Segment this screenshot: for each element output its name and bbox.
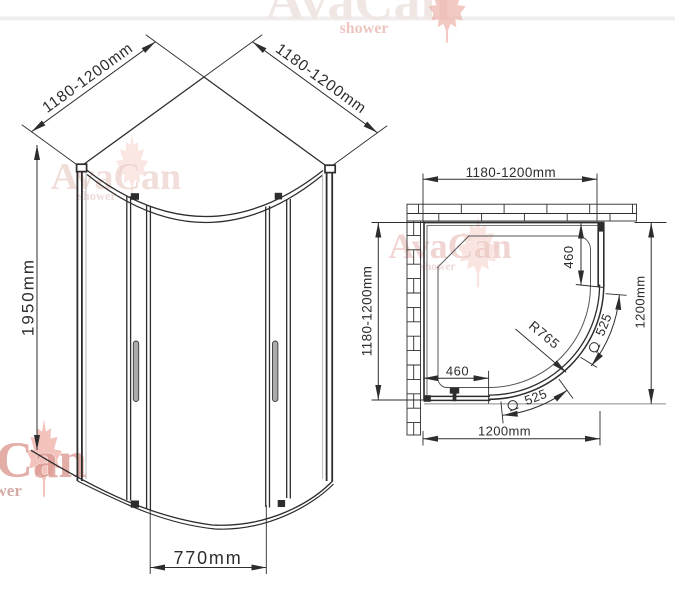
svg-text:1180-1200mm: 1180-1200mm <box>39 40 136 117</box>
svg-text:1200mm: 1200mm <box>633 276 648 329</box>
svg-text:1180-1200mm: 1180-1200mm <box>272 40 369 117</box>
svg-text:shower: shower <box>340 20 389 37</box>
svg-text:1180-1200mm: 1180-1200mm <box>466 165 556 180</box>
svg-text:1200mm: 1200mm <box>478 424 531 439</box>
svg-text:460: 460 <box>561 245 576 268</box>
svg-text:ower: ower <box>0 481 22 500</box>
svg-text:770mm: 770mm <box>173 548 242 568</box>
svg-text:R765: R765 <box>526 318 563 352</box>
svg-text:1950mm: 1950mm <box>19 258 38 336</box>
svg-text:1180-1200mm: 1180-1200mm <box>360 266 375 356</box>
svg-text:460: 460 <box>446 364 469 379</box>
